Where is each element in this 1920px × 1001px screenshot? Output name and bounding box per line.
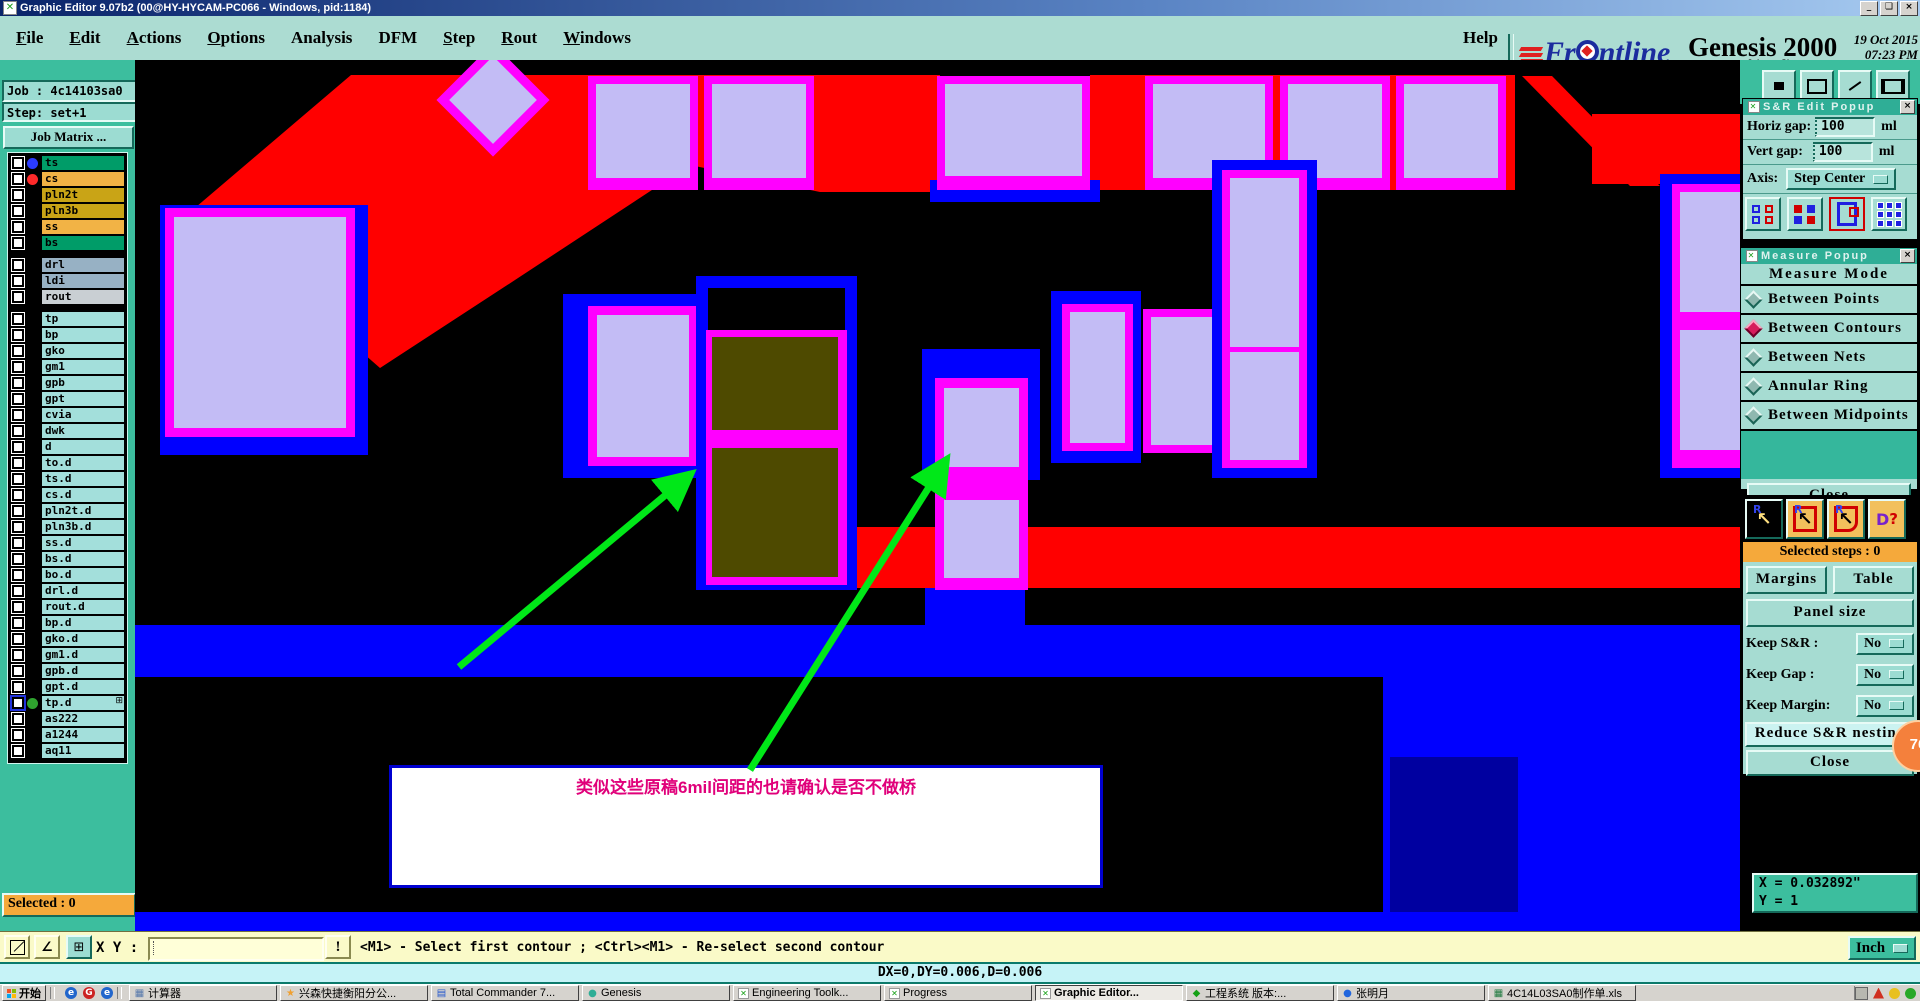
- measure-mode-between-contours[interactable]: Between Contours: [1741, 313, 1917, 342]
- soldermask-opening[interactable]: [712, 337, 838, 430]
- layer-label[interactable]: pln3b: [41, 203, 125, 219]
- window-titlebar: ✕ Graphic Editor 9.07b2 (00@HY-HYCAM-PC0…: [0, 0, 1920, 16]
- grid-toggle-icon[interactable]: ⊞: [66, 935, 92, 959]
- select-cursor-tool[interactable]: R↖: [1745, 499, 1783, 539]
- layer-label[interactable]: bs.d: [41, 551, 125, 567]
- layer-label[interactable]: gpt: [41, 391, 125, 407]
- layer-checkbox[interactable]: [12, 553, 24, 565]
- app-icon: ✕: [3, 1, 17, 15]
- layer-label[interactable]: dwk: [41, 423, 125, 439]
- measure-mode-between-nets[interactable]: Between Nets: [1741, 342, 1917, 371]
- taskbar-separator: [50, 987, 55, 999]
- annotation-box[interactable]: 类似这些原稿6mil间距的也请确认是否不做桥: [389, 765, 1103, 888]
- layer-label[interactable]: tp.d⊞: [41, 695, 125, 711]
- sr-pattern-outline-button[interactable]: [1745, 197, 1781, 231]
- menu-options[interactable]: Options: [207, 28, 265, 47]
- tc-icon: ▤: [436, 988, 447, 999]
- layer-checkbox[interactable]: [12, 361, 24, 373]
- qq-icon: ●: [1342, 988, 1353, 999]
- task-button[interactable]: ●Genesis: [582, 985, 730, 1001]
- cursor-x: X = 0.032892": [1759, 875, 1916, 893]
- task-buttons: ▦计算器★兴森快捷衡阳分公...▤Total Commander 7...●Ge…: [126, 985, 1854, 1001]
- pcb-pad[interactable]: [1062, 304, 1133, 451]
- quick-launch: eGe: [59, 987, 113, 999]
- sr-pattern-filled-button[interactable]: [1787, 197, 1823, 231]
- layer-label[interactable]: ss.d: [41, 535, 125, 551]
- layer-label[interactable]: ts.d: [41, 471, 125, 487]
- pcb-pad[interactable]: [588, 306, 698, 466]
- layer-active-dot: [27, 158, 38, 169]
- gx-icon: ✕: [738, 988, 749, 999]
- menu-actions[interactable]: Actions: [127, 28, 182, 47]
- sr-edit-popup: ✕ S&R Edit Popup × Horiz gap: 100 ml Ver…: [1742, 98, 1918, 240]
- layer-label[interactable]: bo.d: [41, 567, 125, 583]
- selected-steps-banner: Selected steps : 0: [1743, 542, 1917, 562]
- layer-label[interactable]: as222: [41, 711, 125, 727]
- layer-checkbox[interactable]: [12, 275, 24, 287]
- task-button[interactable]: ✕Engineering Toolk...: [733, 985, 881, 1001]
- margins-button[interactable]: Margins: [1746, 566, 1827, 594]
- measure-mode-label: Between Points: [1768, 291, 1880, 308]
- layer-row-ss.d[interactable]: ss.d: [8, 535, 127, 551]
- task-label: 4C14L03SA0制作单.xls: [1507, 985, 1622, 1001]
- sr-tools-panel: R↖ R↖ R↖ D? Selected steps : 0 Margins T…: [1742, 495, 1918, 775]
- dropdown-dash-icon: [1889, 670, 1904, 679]
- task-button[interactable]: ●张明月: [1337, 985, 1485, 1001]
- layer-active-dot: [27, 174, 38, 185]
- query-tool[interactable]: D?: [1868, 499, 1906, 539]
- dropdown-dash-icon: [1889, 639, 1904, 648]
- axis-label: Axis:: [1747, 171, 1778, 187]
- task-button[interactable]: ✕Graphic Editor...: [1035, 985, 1183, 1001]
- radio-diamond-icon: [1744, 290, 1762, 308]
- layer-row-gko.d[interactable]: gko.d: [8, 631, 127, 647]
- task-button[interactable]: ◆工程系统 版本:...: [1186, 985, 1334, 1001]
- soldermask-opening[interactable]: [712, 448, 838, 577]
- layer-row-pln2t[interactable]: pln2t: [8, 187, 127, 203]
- layer-checkbox[interactable]: [12, 457, 24, 469]
- layer-checkbox[interactable]: [12, 713, 24, 725]
- layer-label[interactable]: rout.d: [41, 599, 125, 615]
- system-tray: [1854, 986, 1920, 1000]
- layer-row-gpt[interactable]: gpt: [8, 391, 127, 407]
- datetime: 19 Oct 201507:23 PM: [1824, 32, 1918, 62]
- layer-label[interactable]: gm1: [41, 359, 125, 375]
- popup-close-icon[interactable]: ×: [1900, 100, 1915, 114]
- pad-inner: [1230, 178, 1299, 347]
- layer-checkbox[interactable]: [12, 291, 24, 303]
- layer-label[interactable]: tp: [41, 311, 125, 327]
- layer-checkbox[interactable]: [12, 259, 24, 271]
- zoom-extents-icon[interactable]: [4, 935, 30, 959]
- layer-checkbox[interactable]: [12, 425, 24, 437]
- measure-mode-label: Between Nets: [1768, 349, 1866, 366]
- keep-label: Keep Margin:: [1746, 698, 1830, 714]
- globe-icon: ●: [587, 988, 598, 999]
- layer-label[interactable]: a1244: [41, 727, 125, 743]
- popup-icon: ✕: [1748, 101, 1760, 113]
- keep-dropdown[interactable]: No: [1856, 695, 1914, 717]
- layer-row-bp.d[interactable]: bp.d: [8, 615, 127, 631]
- layer-row-tp.d[interactable]: tp.d⊞: [8, 695, 127, 711]
- command-bar: ∠ ⊞ X Y : ! <M1> - Select first contour …: [0, 931, 1920, 963]
- layer-row-to.d[interactable]: to.d: [8, 455, 127, 471]
- quick-launch-icon-2[interactable]: e: [101, 987, 113, 999]
- layer-label[interactable]: drl.d: [41, 583, 125, 599]
- layer-active-dot: [27, 698, 38, 709]
- layer-checkbox[interactable]: [12, 377, 24, 389]
- reduce-nesting-button[interactable]: Reduce S&R nesting: [1745, 722, 1915, 747]
- quick-launch-icon-1[interactable]: G: [83, 987, 95, 999]
- layer-label[interactable]: ts: [41, 155, 125, 171]
- layer-row-bp[interactable]: bp: [8, 327, 127, 343]
- close-button[interactable]: ×: [1900, 1, 1918, 16]
- layer-label[interactable]: gpb.d: [41, 663, 125, 679]
- layer-label[interactable]: cs.d: [41, 487, 125, 503]
- pad-inner: [1680, 330, 1740, 450]
- layer-row-cvia[interactable]: cvia: [8, 407, 127, 423]
- keep-options: Keep S&R :NoKeep Gap :NoKeep Margin:No: [1743, 628, 1917, 721]
- layer-checkbox[interactable]: [12, 617, 24, 629]
- layer-label[interactable]: gko: [41, 343, 125, 359]
- vert-gap-label: Vert gap:: [1747, 144, 1803, 160]
- layer-row-a1244[interactable]: a1244: [8, 727, 127, 743]
- layer-label[interactable]: pln2t: [41, 187, 125, 203]
- vert-gap-unit: ml: [1879, 144, 1895, 160]
- status-message: <M1> - Select first contour ; <Ctrl><M1>…: [360, 940, 884, 955]
- layer-row-tp[interactable]: tp: [8, 311, 127, 327]
- layer-row-cs[interactable]: cs: [8, 171, 127, 187]
- popup-title: S&R Edit Popup: [1763, 99, 1875, 115]
- layer-row-cs.d[interactable]: cs.d: [8, 487, 127, 503]
- layer-label[interactable]: cs: [41, 171, 125, 187]
- layer-list[interactable]: tscspln2tpln3bssbsdrlldirouttpbpgkogm1gp…: [7, 152, 128, 764]
- dropdown-dash-icon: [1889, 701, 1904, 710]
- task-button[interactable]: ★兴森快捷衡阳分公...: [280, 985, 428, 1001]
- layer-label[interactable]: gm1.d: [41, 647, 125, 663]
- task-label: Engineering Toolk...: [752, 987, 848, 999]
- layer-label[interactable]: to.d: [41, 455, 125, 471]
- delta-bar: DX=0,DY=0.006,D=0.006: [0, 962, 1920, 984]
- layer-row-ts.d[interactable]: ts.d: [8, 471, 127, 487]
- select-frame-tool[interactable]: R↖: [1786, 499, 1824, 539]
- windows-flag-icon: [7, 989, 16, 998]
- layer-checkbox[interactable]: [12, 745, 24, 757]
- layer-row-rout.d[interactable]: rout.d: [8, 599, 127, 615]
- layer-row-ss[interactable]: ss: [8, 219, 127, 235]
- radio-diamond-icon: [1744, 319, 1762, 337]
- layer-row-gko[interactable]: gko: [8, 343, 127, 359]
- layer-checkbox[interactable]: [12, 221, 24, 233]
- layer-checkbox[interactable]: [12, 681, 24, 693]
- layer-label[interactable]: d: [41, 439, 125, 455]
- im-tray-icon[interactable]: [1889, 988, 1900, 999]
- dropdown-dash-icon: [1893, 944, 1908, 953]
- layer-row-d[interactable]: d: [8, 439, 127, 455]
- layer-label[interactable]: rout: [41, 289, 125, 305]
- restore-button[interactable]: ❏: [1880, 1, 1898, 16]
- layer-row-gm1.d[interactable]: gm1.d: [8, 647, 127, 663]
- pad-inner: [944, 500, 1019, 578]
- quick-launch-icon-0[interactable]: e: [65, 987, 77, 999]
- layer-checkbox[interactable]: [12, 505, 24, 517]
- taskbar: 开始 eGe ▦计算器★兴森快捷衡阳分公...▤Total Commander …: [0, 984, 1920, 1001]
- popup-icon: ✕: [1746, 250, 1758, 262]
- layer-checkbox[interactable]: [12, 537, 24, 549]
- layer-label[interactable]: ss: [41, 219, 125, 235]
- annotation-text: 类似这些原稿6mil间距的也请确认是否不做桥: [392, 773, 1100, 798]
- vert-gap-input[interactable]: 100: [1813, 142, 1873, 162]
- radio-diamond-icon: [1744, 406, 1762, 424]
- keep-dropdown[interactable]: No: [1856, 664, 1914, 686]
- axis-dropdown[interactable]: Step Center: [1786, 168, 1896, 190]
- panel-size-button[interactable]: Panel size: [1746, 599, 1914, 627]
- horiz-gap-label: Horiz gap:: [1747, 119, 1811, 135]
- keep-label: Keep S&R :: [1746, 636, 1818, 652]
- keep-label: Keep Gap :: [1746, 667, 1814, 683]
- xy-label: X Y :: [96, 940, 138, 956]
- cursor-readout: X = 0.032892" Y = 1: [1752, 873, 1918, 913]
- layer-checkbox[interactable]: [12, 409, 24, 421]
- layer-checkbox[interactable]: [12, 329, 24, 341]
- layer-checkbox[interactable]: [12, 205, 24, 217]
- layer-row-gpt.d[interactable]: gpt.d: [8, 679, 127, 695]
- delta-readout: DX=0,DY=0.006,D=0.006: [878, 965, 1042, 980]
- blue-bottom-strip: [135, 912, 1740, 931]
- layer-checkbox[interactable]: [12, 489, 24, 501]
- table-button[interactable]: Table: [1833, 566, 1914, 594]
- layer-label[interactable]: bp.d: [41, 615, 125, 631]
- menu-edit[interactable]: Edit: [69, 28, 100, 47]
- layer-label[interactable]: gpt.d: [41, 679, 125, 695]
- taskbar-separator: [117, 987, 122, 999]
- measure-mode-list: Between PointsBetween ContoursBetween Ne…: [1741, 284, 1917, 429]
- navy-block: [1390, 757, 1518, 912]
- layer-row-bs.d[interactable]: bs.d: [8, 551, 127, 567]
- task-button[interactable]: ▦计算器: [129, 985, 277, 1001]
- menu-rout[interactable]: Rout: [501, 28, 537, 47]
- layer-label[interactable]: bs: [41, 235, 125, 251]
- menu-items: FileEditActionsOptionsAnalysisDFMStepRou…: [16, 28, 657, 48]
- menu-dfm[interactable]: DFM: [378, 28, 417, 47]
- pcb-pad[interactable]: [165, 208, 355, 437]
- radio-diamond-icon: [1744, 348, 1762, 366]
- layer-checkbox[interactable]: [12, 569, 24, 581]
- layer-label[interactable]: gpb: [41, 375, 125, 391]
- menu-help[interactable]: Help: [1463, 28, 1498, 48]
- layer-row-gm1[interactable]: gm1: [8, 359, 127, 375]
- keep-row: Keep Gap :No: [1743, 659, 1917, 690]
- task-label: Total Commander 7...: [450, 987, 555, 999]
- task-label: Progress: [903, 987, 947, 999]
- xy-input[interactable]: [148, 937, 324, 961]
- pcb-pad[interactable]: [704, 76, 814, 190]
- measure-popup: ✕ Measure Popup × Measure Mode Between P…: [1740, 247, 1918, 490]
- task-label: 计算器: [148, 985, 181, 1001]
- layer-checkbox[interactable]: [12, 729, 24, 741]
- menu-file[interactable]: File: [16, 28, 43, 47]
- layer-row-aq11[interactable]: aq11: [8, 743, 127, 759]
- task-label: Genesis: [601, 987, 641, 999]
- alert-tray-icon[interactable]: [1873, 988, 1884, 999]
- menu-step[interactable]: Step: [443, 28, 475, 47]
- layer-checkbox[interactable]: [12, 633, 24, 645]
- task-button[interactable]: ▤Total Commander 7...: [431, 985, 579, 1001]
- layer-checkbox[interactable]: [12, 173, 24, 185]
- layer-row-drl.d[interactable]: drl.d: [8, 583, 127, 599]
- measure-popup-titlebar[interactable]: ✕ Measure Popup ×: [1741, 248, 1917, 264]
- layer-row-gpb[interactable]: gpb: [8, 375, 127, 391]
- task-label: 兴森快捷衡阳分公...: [299, 985, 396, 1001]
- units-dropdown[interactable]: Inch: [1848, 936, 1916, 960]
- start-button[interactable]: 开始: [2, 985, 46, 1001]
- horiz-gap-unit: ml: [1881, 119, 1897, 135]
- layer-row-pln3b.d[interactable]: pln3b.d: [8, 519, 127, 535]
- window-title: Graphic Editor 9.07b2 (00@HY-HYCAM-PC066…: [20, 2, 371, 14]
- measure-mode-annular-ring[interactable]: Annular Ring: [1741, 371, 1917, 400]
- pcb-pad[interactable]: [937, 76, 1090, 190]
- select-contour-tool[interactable]: R↖: [1827, 499, 1865, 539]
- task-label: 张明月: [1356, 985, 1389, 1001]
- minimize-button[interactable]: _: [1860, 1, 1878, 16]
- sys-icon: ◆: [1191, 988, 1202, 999]
- layer-checkbox[interactable]: [12, 521, 24, 533]
- pad-inner: [1680, 192, 1740, 312]
- measure-mode-label: Between Contours: [1768, 320, 1902, 337]
- layer-row-as222[interactable]: as222: [8, 711, 127, 727]
- menu-analysis[interactable]: Analysis: [291, 28, 352, 47]
- layer-label[interactable]: drl: [41, 257, 125, 273]
- measure-mode-between-midpoints[interactable]: Between Midpoints: [1741, 400, 1917, 429]
- layer-label[interactable]: aq11: [41, 743, 125, 759]
- layer-checkbox[interactable]: [12, 237, 24, 249]
- layer-checkbox[interactable]: [12, 345, 24, 357]
- layer-checkbox[interactable]: [12, 189, 24, 201]
- pcb-pad[interactable]: [1396, 76, 1506, 190]
- layer-label[interactable]: ldi: [41, 273, 125, 289]
- layer-label[interactable]: cvia: [41, 407, 125, 423]
- keep-row: Keep S&R :No: [1743, 628, 1917, 659]
- gx-icon: ✕: [1040, 988, 1051, 999]
- keep-row: Keep Margin:No: [1743, 690, 1917, 721]
- layer-row-pln3b[interactable]: pln3b: [8, 203, 127, 219]
- layer-row-gpb.d[interactable]: gpb.d: [8, 663, 127, 679]
- task-label: 工程系统 版本:...: [1205, 985, 1286, 1001]
- layer-checkbox[interactable]: [12, 473, 24, 485]
- layer-checkbox[interactable]: [12, 157, 24, 169]
- menu-windows[interactable]: Windows: [563, 28, 631, 47]
- measure-mode-header: Measure Mode: [1741, 264, 1917, 284]
- layer-row-ts[interactable]: ts: [8, 155, 127, 171]
- pcb-pad[interactable]: [1143, 309, 1221, 453]
- layer-checkbox[interactable]: [12, 393, 24, 405]
- sr-close-button[interactable]: Close: [1746, 750, 1914, 776]
- selected-count: Selected : 0: [2, 893, 136, 917]
- layer-checkbox[interactable]: [12, 665, 24, 677]
- step-label: Step: set+1: [2, 102, 140, 122]
- calc-icon: ▦: [134, 988, 145, 999]
- layer-row-pln2t.d[interactable]: pln2t.d: [8, 503, 127, 519]
- shield-tray-icon[interactable]: [1905, 988, 1916, 999]
- layer-checkbox[interactable]: [12, 649, 24, 661]
- measure-mode-label: Between Midpoints: [1768, 407, 1909, 424]
- cursor-y: Y = 1: [1759, 893, 1916, 911]
- prompt-icon[interactable]: !: [325, 935, 351, 959]
- layer-row-bs[interactable]: bs: [8, 235, 127, 251]
- radio-diamond-icon: [1744, 377, 1762, 395]
- star-icon: ★: [285, 988, 296, 999]
- angle-measure-icon[interactable]: ∠: [34, 935, 60, 959]
- layer-checkbox[interactable]: [12, 585, 24, 597]
- layer-label[interactable]: pln2t.d: [41, 503, 125, 519]
- layer-row-bo.d[interactable]: bo.d: [8, 567, 127, 583]
- layer-row-rout[interactable]: rout: [8, 289, 127, 305]
- blue-via-connector: [925, 588, 1025, 677]
- layer-label[interactable]: pln3b.d: [41, 519, 125, 535]
- printer-tray-icon[interactable]: [1855, 987, 1868, 1000]
- layer-row-dwk[interactable]: dwk: [8, 423, 127, 439]
- right-panel-column: ✕ S&R Edit Popup × Horiz gap: 100 ml Ver…: [1740, 60, 1920, 931]
- gx-icon: ✕: [889, 988, 900, 999]
- sidebar: Job : 4c14103sa0 Step: set+1 Job Matrix …: [0, 60, 135, 931]
- sr-pattern-grid-button[interactable]: [1871, 197, 1907, 231]
- layer-checkbox[interactable]: [12, 601, 24, 613]
- layer-label[interactable]: gko.d: [41, 631, 125, 647]
- pad-inner: [944, 388, 1019, 467]
- measure-mode-label: Annular Ring: [1768, 378, 1869, 395]
- pcb-pad[interactable]: [588, 76, 698, 190]
- pcb-canvas[interactable]: 类似这些原稿6mil间距的也请确认是否不做桥: [135, 60, 1740, 931]
- menu-bar: FileEditActionsOptionsAnalysisDFMStepRou…: [0, 16, 1920, 62]
- job-matrix-button[interactable]: Job Matrix ...: [3, 126, 134, 149]
- xls-icon: ▦: [1493, 988, 1504, 999]
- layer-row-drl[interactable]: drl: [8, 257, 127, 273]
- measure-mode-between-points[interactable]: Between Points: [1741, 284, 1917, 313]
- layer-row-ldi[interactable]: ldi: [8, 273, 127, 289]
- horiz-gap-input[interactable]: 100: [1815, 117, 1875, 137]
- pad-inner: [1230, 352, 1299, 460]
- layer-label[interactable]: bp: [41, 327, 125, 343]
- sr-edit-popup-titlebar[interactable]: ✕ S&R Edit Popup ×: [1743, 99, 1917, 115]
- popup-close-icon[interactable]: ×: [1900, 249, 1915, 263]
- sr-pattern-step-button[interactable]: [1829, 197, 1865, 231]
- task-label: Graphic Editor...: [1054, 987, 1139, 999]
- layer-checkbox[interactable]: [12, 697, 24, 709]
- keep-dropdown[interactable]: No: [1856, 633, 1914, 655]
- layer-checkbox[interactable]: [12, 313, 24, 325]
- task-button[interactable]: ▦4C14L03SA0制作单.xls: [1488, 985, 1636, 1001]
- job-label: Job : 4c14103sa0: [2, 80, 140, 102]
- layer-checkbox[interactable]: [12, 441, 24, 453]
- dropdown-dash-icon: [1873, 175, 1888, 184]
- popup-title: Measure Popup: [1761, 248, 1869, 264]
- task-button[interactable]: ✕Progress: [884, 985, 1032, 1001]
